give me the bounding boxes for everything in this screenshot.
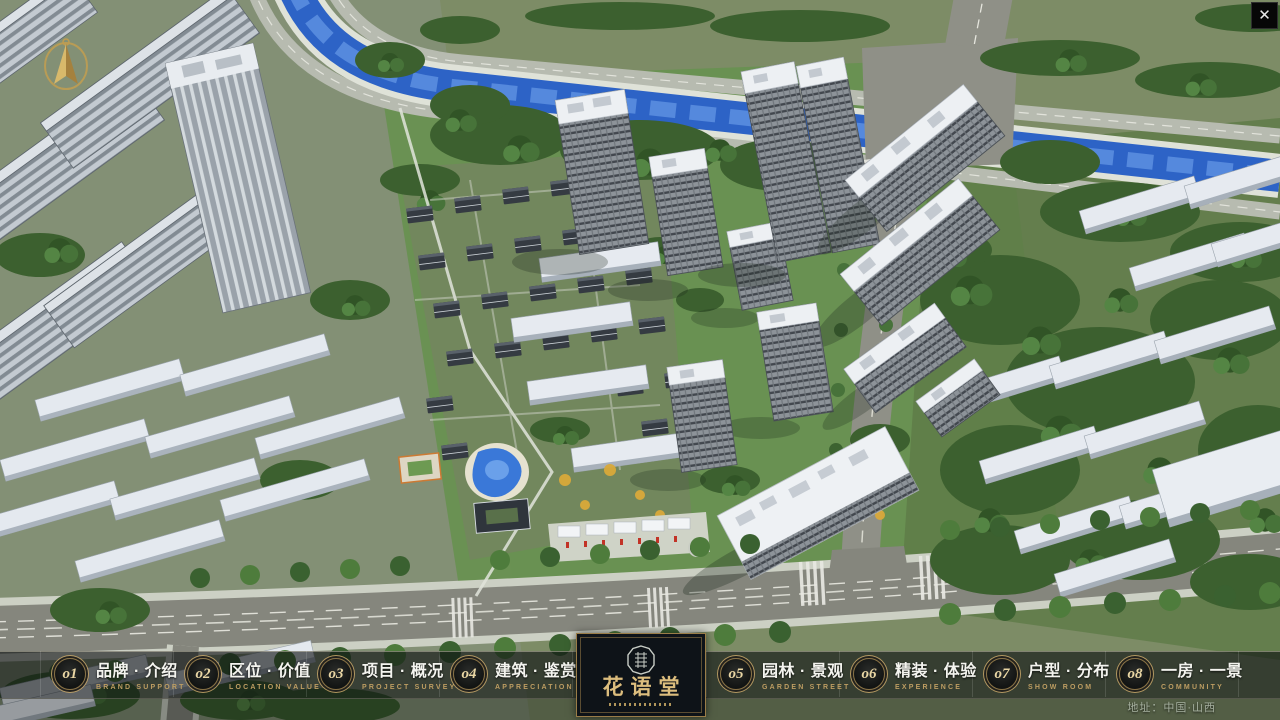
- nav-item-garden[interactable]: o5 园林 · 景观 GARDEN STREET: [706, 651, 839, 697]
- close-button[interactable]: ✕: [1251, 2, 1278, 29]
- nav-item-views[interactable]: o8 一房 · 一景 COMMUNITY: [1105, 651, 1238, 697]
- nav-item-number-badge: o2: [187, 658, 219, 690]
- nav-item-label-en: GARDEN STREET: [762, 684, 851, 691]
- nav-item-number-badge: o3: [320, 658, 352, 690]
- address-text: 地址：中国·山西: [1127, 699, 1216, 715]
- nav-item-architecture[interactable]: o4 建筑 · 鉴赏 APPRECIATION: [439, 651, 572, 697]
- logo-plaque[interactable]: 花语堂: [576, 633, 706, 717]
- nav-item-number-badge: o8: [1119, 658, 1151, 690]
- logo-subline: [609, 703, 673, 706]
- nav-item-label-zh: 精装 · 体验: [895, 657, 977, 681]
- nav-item-number-badge: o5: [720, 658, 752, 690]
- compass-icon: [40, 34, 92, 94]
- nav-item-label-zh: 园林 · 景观: [762, 657, 851, 681]
- nav-item-label-zh: 一房 · 一景: [1161, 657, 1243, 681]
- nav-item-label-en: COMMUNITY: [1161, 684, 1243, 691]
- nav-item-brand[interactable]: o1 品牌 · 介绍 BRAND SUPPORT: [40, 651, 173, 697]
- logo-seal-icon: [626, 645, 656, 675]
- nav-item-label-zh: 建筑 · 鉴赏: [495, 657, 577, 681]
- nav-item-number-badge: o4: [453, 658, 485, 690]
- app-window: ✕ o1 品牌 · 介绍 BRAND SUPPORT o2 区位 · 价值 LO…: [0, 0, 1280, 720]
- nav-item-label-en: SHOW ROOM: [1028, 684, 1110, 691]
- nav-item-interior[interactable]: o6 精装 · 体验 EXPERIENCE: [839, 651, 972, 697]
- logo-title: 花语堂: [596, 677, 687, 698]
- nav-item-number-badge: o7: [986, 658, 1018, 690]
- nav-item-project[interactable]: o3 项目 · 概况 PROJECT SURVEY: [306, 651, 439, 697]
- nav-item-label-en: EXPERIENCE: [895, 684, 977, 691]
- nav-item-number-badge: o1: [54, 658, 86, 690]
- close-icon: ✕: [1258, 8, 1271, 23]
- nav-item-label-en: APPRECIATION: [495, 684, 577, 691]
- nav-item-location[interactable]: o2 区位 · 价值 LOCATION VALUE: [173, 651, 306, 697]
- nav-item-number-badge: o6: [853, 658, 885, 690]
- nav-item-floorplan[interactable]: o7 户型 · 分布 SHOW ROOM: [972, 651, 1105, 697]
- nav-item-label-zh: 户型 · 分布: [1028, 657, 1110, 681]
- aerial-masterplan-render: [0, 0, 1280, 720]
- swimming-pool: [465, 443, 529, 501]
